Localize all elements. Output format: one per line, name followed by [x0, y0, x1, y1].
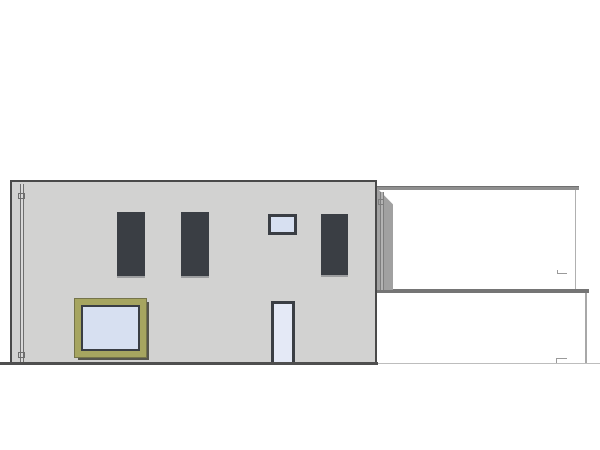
downpipe-left	[20, 184, 24, 362]
step-mark-upper	[557, 270, 567, 274]
window-upper-2	[181, 212, 209, 276]
window-upper-3	[321, 214, 348, 275]
downpipe-left-clamp-bottom	[18, 352, 25, 358]
elevation-drawing	[0, 0, 600, 450]
windows-layer	[0, 0, 600, 450]
glass-pane	[81, 305, 140, 351]
door-window	[271, 301, 295, 364]
downpipe-left-clamp-top	[18, 193, 25, 199]
window-upper-1	[117, 212, 145, 276]
ground-line-light	[378, 363, 600, 364]
step-mark-lower	[556, 358, 567, 363]
window-small	[268, 214, 297, 235]
window-large-fixed	[75, 299, 146, 357]
ground-line-dark	[0, 362, 378, 365]
